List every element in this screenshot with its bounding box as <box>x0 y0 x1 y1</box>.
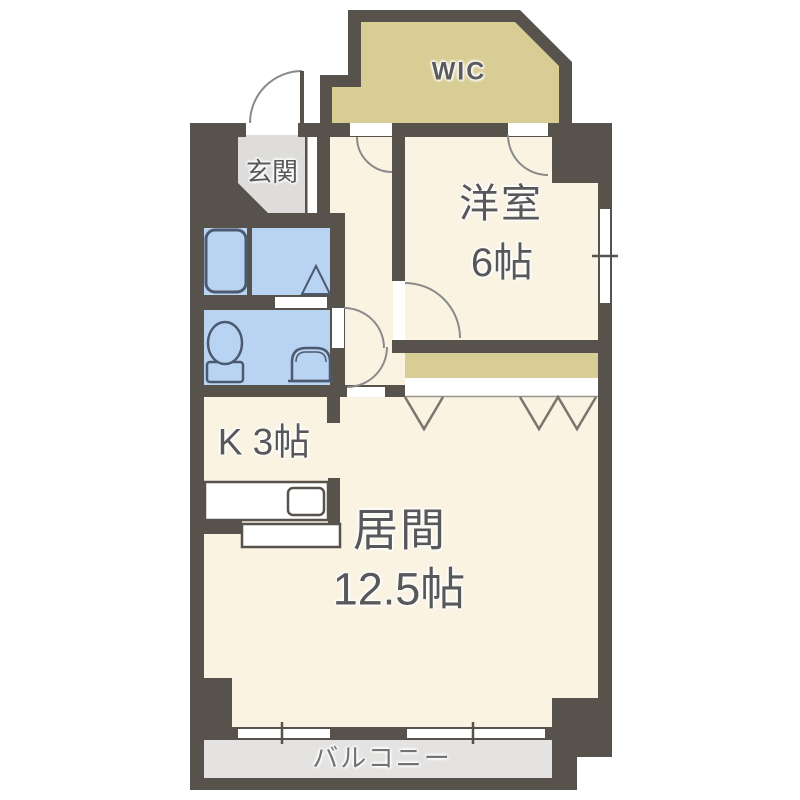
bathtub-icon <box>206 230 246 292</box>
wic-label: WIC <box>432 60 487 85</box>
floorplan-drawing <box>0 0 800 800</box>
western-room-size: 6帖 <box>471 243 533 283</box>
western-room-top-door-gap <box>508 123 548 136</box>
genkan-step-edge <box>305 135 308 213</box>
balcony-label: バルコニー <box>312 745 451 771</box>
living-room-size: 12.5帖 <box>333 567 466 612</box>
western-room-side-door-gap <box>393 281 405 340</box>
genkan-label: 玄関 <box>246 159 298 185</box>
toilet-icon <box>207 322 243 382</box>
kitchen-sink-icon <box>288 488 324 515</box>
living-window-left <box>238 729 330 738</box>
washroom-door-gap <box>332 308 344 348</box>
western-room-label: 洋室 <box>459 184 543 224</box>
kitchen-label: K 3帖 <box>218 424 311 461</box>
wic-door-gap <box>350 123 392 136</box>
closet <box>405 353 598 397</box>
floorplan-canvas: WIC 玄関 洋室 6帖 K 3帖 居間 12.5帖 バルコニー <box>0 0 800 800</box>
entrance-door-arc <box>250 71 302 123</box>
hand-sink-icon <box>288 348 334 381</box>
toilet-door-gap <box>275 297 327 308</box>
living-window-right <box>407 729 545 738</box>
living-room-label: 居間 <box>353 508 447 553</box>
counter-ledge <box>242 524 340 547</box>
hall-door-gap <box>347 387 385 397</box>
